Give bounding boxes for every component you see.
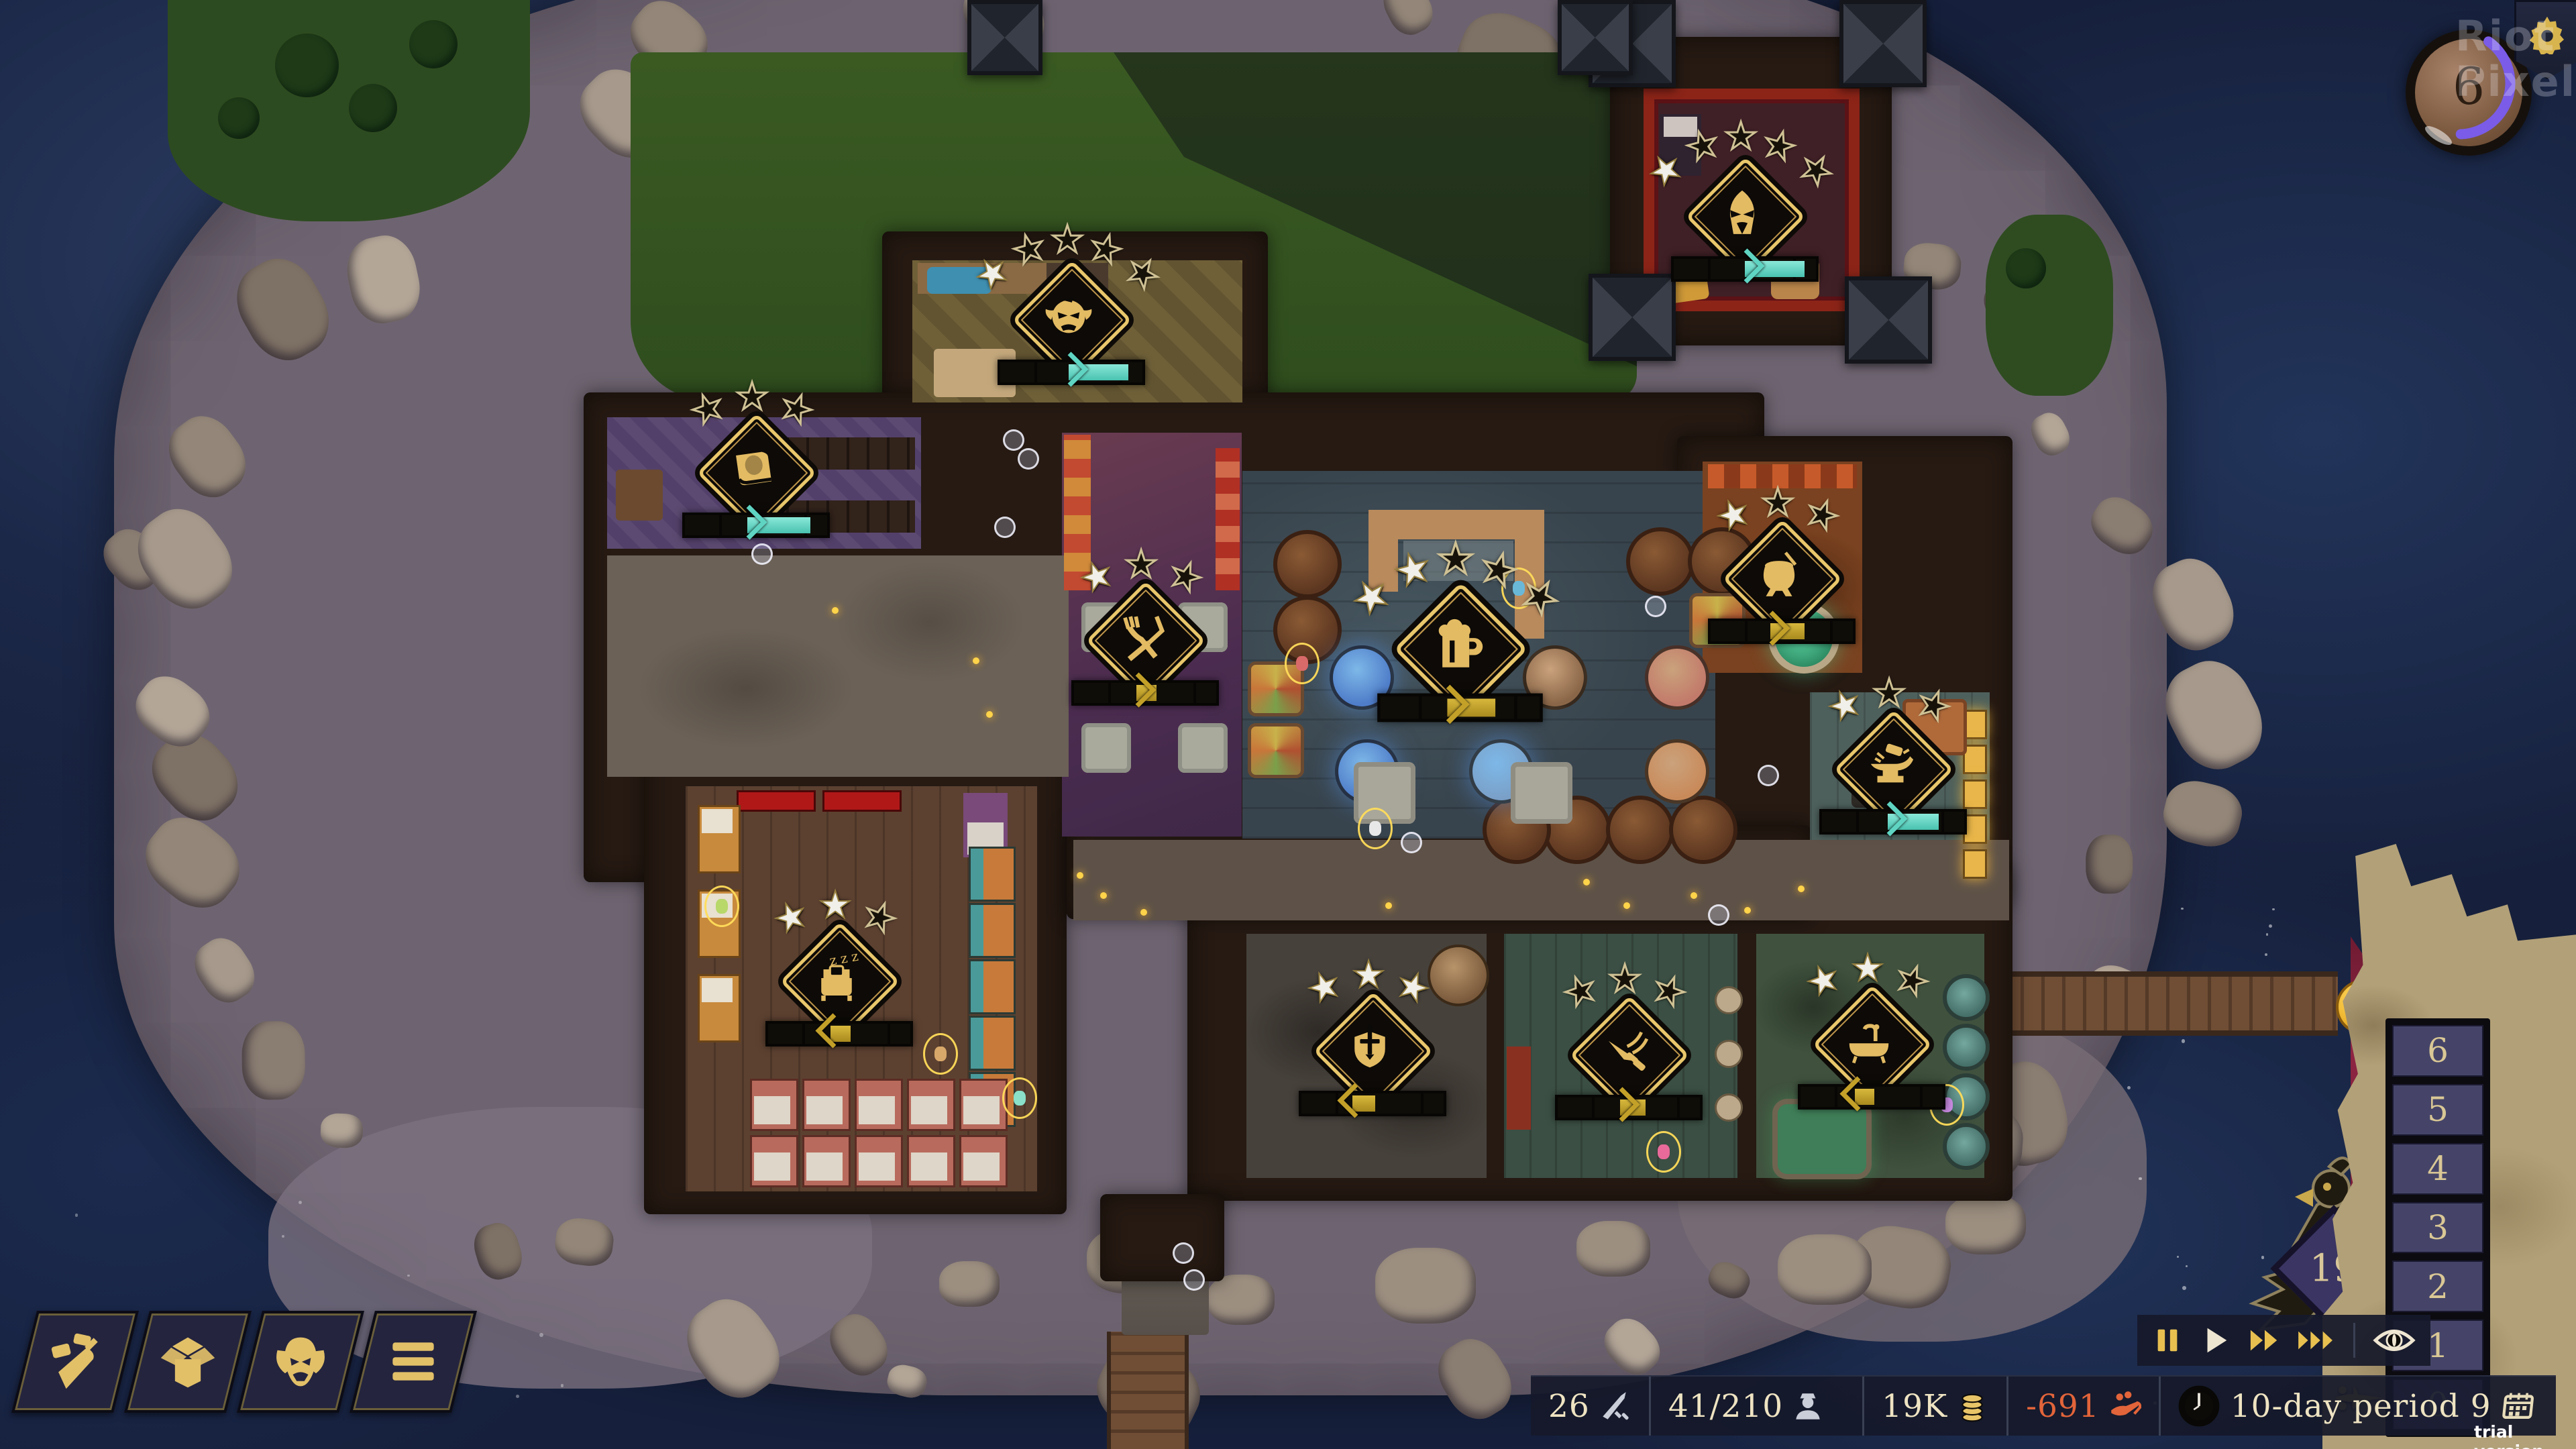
blades-resource: 26 <box>1531 1377 1649 1436</box>
hooded-wizard-icon <box>1716 187 1768 239</box>
thought-bubble <box>751 543 773 565</box>
star-empty-icon: ★ <box>1724 118 1758 156</box>
barrel <box>1626 527 1695 596</box>
room-progress-bar <box>1555 1095 1703 1120</box>
glowing-locker <box>1963 780 1987 809</box>
round-table <box>1645 645 1709 710</box>
tree <box>409 20 458 68</box>
bath-tub <box>1943 974 1990 1021</box>
star-empty-icon: ★ <box>1761 484 1794 522</box>
thought-bubble <box>1645 596 1666 617</box>
star-empty-icon: ★ <box>1437 539 1474 581</box>
coin-sparkle <box>1077 872 1083 879</box>
barrel <box>1669 796 1737 864</box>
water-sparkle <box>75 1214 78 1217</box>
playback-controls <box>2137 1315 2430 1366</box>
sword-shield-icon <box>1344 1022 1396 1074</box>
red-banner <box>737 790 816 812</box>
thought-bubble <box>1708 904 1729 926</box>
red-banner <box>822 790 902 812</box>
water-sparkle <box>2182 1039 2185 1042</box>
floor-button-3[interactable]: 3 <box>2392 1202 2483 1254</box>
turret-roof <box>1558 0 1633 75</box>
coin-sparkle <box>1623 902 1630 909</box>
bunk-bed <box>969 903 1016 958</box>
corridor-floor <box>607 555 1069 777</box>
coin-sparkle <box>1140 909 1147 916</box>
staff-button[interactable] <box>237 1311 364 1413</box>
guest-highlight[interactable] <box>1358 808 1393 849</box>
room-progress-bar <box>998 360 1145 385</box>
coin-sparkle <box>1100 892 1107 899</box>
glowing-locker <box>1963 849 1987 879</box>
bunk-bed <box>969 1016 1016 1071</box>
shore-rock <box>2151 648 2276 783</box>
coin-sparkle <box>1385 902 1392 909</box>
star-empty-icon: ★ <box>1124 546 1158 584</box>
floor-button-6[interactable]: 6 <box>2392 1025 2483 1077</box>
shore-rock <box>1207 1275 1275 1325</box>
divider <box>2353 1323 2355 1358</box>
thought-bubble <box>1401 832 1422 853</box>
guest-highlight[interactable] <box>1646 1131 1681 1173</box>
water-sparkle <box>2186 1265 2188 1267</box>
bed-linen <box>806 1152 843 1181</box>
square-table <box>1511 762 1572 824</box>
menu-button[interactable] <box>350 1311 477 1413</box>
shore-rock <box>2085 835 2133 894</box>
guest-highlight[interactable] <box>1285 643 1320 684</box>
round-table <box>1428 945 1489 1006</box>
fastest-forward-button[interactable] <box>2297 1325 2336 1356</box>
build-menu <box>24 1311 464 1413</box>
grass-patch <box>1986 215 2113 396</box>
thought-bubble <box>1183 1269 1205 1291</box>
star-empty-icon: ★ <box>1608 961 1642 998</box>
bunk-bed <box>969 847 1016 902</box>
water-sparkle <box>2127 1086 2131 1089</box>
floor-button-5[interactable]: 5 <box>2392 1084 2483 1136</box>
room-progress-bar <box>1377 694 1542 722</box>
water-sparkle <box>2182 1286 2186 1290</box>
stool <box>1715 986 1743 1014</box>
room-progress-bar <box>1798 1084 1945 1110</box>
barrel <box>1273 530 1342 598</box>
coin-sparkle <box>1744 907 1751 914</box>
shore-rock <box>320 1112 364 1148</box>
book-icon <box>727 443 780 496</box>
shore-rock <box>241 1020 305 1099</box>
buffet-table <box>1248 723 1304 778</box>
room-progress-bar <box>765 1021 913 1046</box>
thought-bubble <box>994 517 1016 538</box>
bed-linen <box>754 1152 790 1181</box>
cauldron-icon <box>1753 549 1805 602</box>
balance-resource: -691 <box>2006 1377 2159 1436</box>
water-sparkle <box>2272 908 2274 910</box>
eye-overview-button[interactable] <box>2373 1325 2416 1356</box>
hand-coins-icon <box>2108 1389 2141 1423</box>
floor-button-4[interactable]: 4 <box>2392 1143 2483 1195</box>
turret-roof <box>1839 0 1927 87</box>
star-filled-icon: ★ <box>1352 957 1385 994</box>
menu-lines-icon <box>382 1331 444 1393</box>
star-filled-icon: ★ <box>1851 950 1884 987</box>
star-empty-icon: ★ <box>1051 221 1084 259</box>
room-progress-bar <box>1299 1091 1446 1116</box>
building-wall <box>1100 1194 1224 1281</box>
coin-sparkle <box>832 607 839 614</box>
box-icon <box>157 1331 219 1393</box>
water-sparkle <box>2139 1177 2141 1180</box>
library-desk <box>616 470 663 521</box>
build-button[interactable] <box>11 1311 139 1413</box>
tree <box>218 97 260 139</box>
guest-highlight[interactable] <box>1002 1077 1037 1119</box>
shore-rock <box>2158 775 2247 853</box>
bathtub-icon <box>1843 1015 1895 1067</box>
beer-mug-icon <box>1428 616 1486 674</box>
room-progress-bar <box>1671 256 1819 282</box>
fast-forward-button[interactable] <box>2249 1325 2279 1356</box>
round-table <box>1645 739 1709 804</box>
bed-linen <box>911 1096 947 1124</box>
furnish-button[interactable] <box>124 1311 252 1413</box>
dock <box>1107 1332 1189 1449</box>
coin-sparkle <box>986 711 993 718</box>
water-sparkle <box>2265 953 2267 956</box>
bed-linen <box>702 978 733 1002</box>
shore-rock <box>1375 1248 1476 1324</box>
floor-button-2[interactable]: 2 <box>2392 1260 2483 1312</box>
guest-highlight[interactable] <box>704 885 739 927</box>
fork-knife-icon <box>1116 611 1169 663</box>
bunk-bed <box>969 959 1016 1014</box>
bed-linen <box>963 1096 1000 1124</box>
sword-icon <box>1598 1389 1631 1423</box>
water-sparkle <box>516 1395 519 1398</box>
shore-rock <box>939 1261 1000 1307</box>
ogre-face-icon <box>1042 290 1095 343</box>
island-map[interactable]: ★★★★★ ★★★★★ ★★★ ★★★ ★★★★★ ★★★ ★★★ ★★★z z… <box>0 0 2576 1449</box>
gargoyle-icon <box>270 1331 331 1393</box>
food-shelf <box>1216 448 1240 590</box>
star-empty-icon: ★ <box>1872 675 1906 712</box>
shore-rock <box>1778 1234 1872 1305</box>
thought-bubble <box>1003 429 1024 451</box>
bed-linen <box>806 1096 843 1124</box>
guest-highlight[interactable] <box>923 1033 958 1075</box>
star-filled-icon: ★ <box>818 887 852 924</box>
blades-value: 26 <box>1548 1388 1590 1425</box>
coin-sparkle <box>973 657 979 664</box>
turret-roof <box>1845 276 1932 364</box>
thought-bubble <box>1173 1242 1194 1264</box>
trial-version-label: trial version <box>2474 1422 2576 1449</box>
resource-bar: 26 41/210 19K -691 10-day period 9 <box>1531 1375 2556 1436</box>
anvil-icon <box>1864 740 1917 792</box>
game-viewport: ★★★★★ ★★★★★ ★★★ ★★★ ★★★★★ ★★★ ★★★ ★★★z z… <box>0 0 2576 1449</box>
water-sparkle <box>2177 1256 2180 1258</box>
water-sparkle <box>407 1275 409 1277</box>
water-sparkle <box>282 1235 284 1238</box>
floor-selector: 6 5 4 3 2 1 0 <box>2385 1018 2490 1437</box>
balance-value: -691 <box>2026 1388 2100 1425</box>
bed-icon: z z z <box>810 952 863 1004</box>
bath-tub <box>1943 1123 1990 1170</box>
bridge <box>1982 971 2338 1036</box>
trowel-icon <box>44 1331 106 1393</box>
play-button[interactable] <box>2200 1325 2231 1356</box>
bed-linen <box>859 1152 895 1181</box>
star-empty-icon: ★ <box>735 378 769 416</box>
coin-sparkle <box>1798 885 1805 892</box>
stool <box>1715 1040 1743 1068</box>
guest-icon <box>1791 1389 1825 1423</box>
turret-roof <box>1589 274 1676 361</box>
dining-table <box>1081 723 1131 773</box>
water-sparkle <box>2181 908 2184 910</box>
clock-icon <box>2178 1385 2220 1427</box>
gold-value: 19K <box>1882 1388 1947 1425</box>
thought-bubble <box>1758 765 1779 786</box>
coin-sparkle <box>1690 892 1697 899</box>
turret-roof <box>967 0 1042 75</box>
tree <box>349 84 397 132</box>
dining-table <box>1178 723 1228 773</box>
bed-linen <box>963 1152 1000 1181</box>
water-sparkle <box>2269 924 2272 928</box>
guests-resource: 41/210 <box>1649 1377 1842 1436</box>
shore-rock <box>1576 1221 1650 1277</box>
game-shelf <box>1507 1046 1531 1130</box>
guests-value: 41/210 <box>1668 1388 1783 1425</box>
thrown-dagger-icon <box>1600 1026 1652 1078</box>
bed-linen <box>702 809 733 833</box>
bed-linen <box>911 1152 947 1181</box>
room-progress-bar <box>1819 809 1967 835</box>
water-sparkle <box>2266 933 2268 935</box>
tree <box>2006 248 2046 288</box>
bath-tub <box>1943 1024 1990 1071</box>
barrel <box>1606 796 1674 864</box>
bed-linen <box>754 1096 790 1124</box>
tree <box>275 34 339 97</box>
coins-icon <box>1955 1389 1989 1423</box>
coin-sparkle <box>1583 879 1590 885</box>
watermark: Riot Pixels <box>2455 13 2576 105</box>
thought-bubble <box>1018 448 1039 470</box>
period-value: 10-day period 9 <box>2231 1388 2491 1425</box>
calendar-icon <box>2500 1387 2538 1426</box>
room-progress-bar <box>682 513 830 538</box>
stool <box>1715 1093 1743 1122</box>
room-progress-bar <box>1708 619 1856 644</box>
pause-button[interactable] <box>2152 1325 2183 1356</box>
room-progress-bar <box>1071 680 1219 706</box>
bed-linen <box>859 1096 895 1124</box>
gold-resource: 19K <box>1862 1377 2006 1436</box>
shore-rock <box>1945 1194 2026 1254</box>
